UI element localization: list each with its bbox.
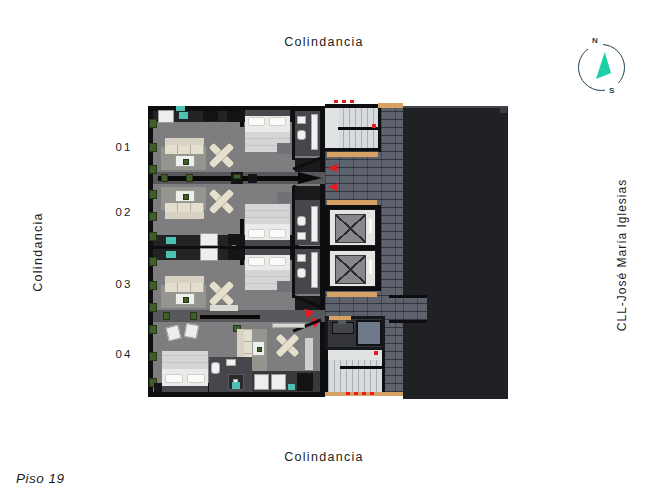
sink — [297, 254, 306, 262]
plant — [149, 119, 157, 128]
mass-corner-detail — [500, 107, 507, 113]
bathtub — [311, 252, 318, 288]
coffee-table — [175, 293, 195, 305]
lounge-chair — [207, 188, 236, 215]
elevator-1 — [329, 209, 376, 246]
sofa-back — [165, 276, 204, 283]
plant — [149, 257, 157, 266]
pillow — [248, 257, 265, 266]
pillow — [248, 117, 265, 126]
dining-table — [274, 332, 301, 359]
coffee-table — [175, 155, 195, 167]
section-mark-top — [334, 100, 358, 103]
bathtub — [311, 206, 318, 242]
plant — [149, 325, 157, 334]
stub-wall-top — [389, 295, 427, 298]
bathroom — [295, 200, 320, 245]
plant — [161, 174, 168, 182]
stair-top-landing — [325, 108, 339, 148]
boundary-label-top: Colindancia — [240, 35, 408, 49]
pillow — [269, 117, 286, 126]
toilet — [297, 130, 306, 140]
corridor-stub — [403, 298, 427, 320]
elevator-cab-icon — [335, 255, 366, 284]
section-mark-bottom — [346, 392, 376, 395]
kitchen-appliance — [158, 110, 174, 123]
stair-top-wall-bottom — [325, 148, 381, 151]
compass: N S — [572, 33, 636, 99]
pillow — [248, 229, 265, 238]
unit-label-02: 02 — [110, 206, 138, 218]
threshold-stair-top — [327, 152, 378, 157]
table-plant — [183, 159, 189, 165]
sofa — [165, 203, 204, 212]
stair-top-red-mark — [372, 124, 376, 128]
coffee-table — [175, 190, 195, 202]
bed — [245, 204, 290, 246]
table-plant — [183, 194, 189, 200]
elevator-door — [369, 260, 372, 274]
shaft-panel — [356, 320, 382, 346]
compass-south-label: S — [609, 86, 614, 95]
toilet — [297, 216, 306, 226]
stair-bottom-stringer — [340, 366, 382, 369]
sink — [297, 232, 306, 240]
partition-wall — [240, 219, 244, 235]
bathtub — [311, 114, 318, 150]
kitchen-appliance — [254, 374, 269, 390]
planter-green — [233, 174, 241, 179]
kitchen-appliance — [200, 248, 218, 261]
kitchen-counter — [153, 249, 232, 260]
stair-bottom-red-mark — [374, 351, 378, 355]
corridor-a-arrowhead — [298, 172, 322, 184]
floorplan-page: Colindancia Colindancia Colindancia CLL-… — [0, 0, 665, 500]
kitchen-counter — [252, 371, 320, 392]
kitchen-sink — [179, 112, 188, 119]
plant — [149, 143, 157, 152]
unit-label-01: 01 — [110, 141, 138, 153]
nightstand — [236, 235, 245, 246]
pillow — [269, 257, 286, 266]
table-plant — [257, 347, 262, 352]
pillow — [187, 374, 205, 383]
entry-arrow-icon — [328, 183, 337, 191]
wall-vent — [176, 106, 185, 111]
headboard — [162, 386, 208, 392]
street-label: CLL-José María Iglesias — [615, 165, 629, 345]
boundary-label-left: Colindancia — [31, 192, 45, 312]
nightstand — [236, 111, 245, 122]
bed — [162, 351, 208, 392]
pillow — [165, 374, 183, 383]
bathroom — [295, 249, 320, 294]
elevator-2 — [329, 250, 376, 287]
kitchen-appliance — [271, 374, 286, 390]
kitchen-counter — [153, 235, 232, 246]
elevator-door — [369, 219, 372, 233]
kitchen-sink — [288, 384, 295, 390]
service-cabinet-tab — [338, 320, 346, 324]
stair-top-wall — [378, 108, 381, 152]
plant — [149, 281, 157, 290]
sink — [297, 116, 306, 124]
sofa — [165, 145, 204, 154]
elevator-cab-icon — [335, 214, 366, 243]
threshold-top — [378, 103, 403, 108]
sofa — [165, 283, 204, 292]
lounge-chair — [207, 280, 236, 307]
lounge-chair — [207, 142, 236, 169]
kitchen-appliance — [200, 233, 218, 246]
planter-box — [248, 174, 257, 183]
console-shelf — [272, 323, 305, 328]
plant — [190, 312, 197, 320]
floor-title: Piso 19 — [16, 471, 65, 486]
plant — [163, 312, 170, 320]
unit-label-03: 03 — [110, 278, 138, 290]
table-plant — [183, 297, 189, 303]
sofa-back — [165, 212, 204, 219]
stair-bottom-wall-right — [382, 350, 385, 392]
corridor-bench — [210, 305, 238, 311]
entry-arrow-icon — [328, 164, 337, 172]
bathroom — [209, 357, 252, 392]
threshold-elevator-bottom — [327, 292, 377, 297]
armchair — [184, 323, 199, 339]
plant — [149, 352, 157, 361]
corridor-b-axis — [200, 315, 260, 319]
entry-nook — [295, 186, 320, 200]
coffee-table — [252, 341, 265, 356]
kitchen-sink — [166, 251, 176, 258]
plant — [149, 303, 157, 312]
adjacent-building-mass — [403, 106, 508, 399]
headboard — [245, 249, 290, 255]
unit-label-04: 04 — [110, 348, 138, 360]
bathroom — [295, 111, 320, 156]
compass-north-label: N — [592, 36, 598, 45]
closet — [297, 373, 313, 391]
blanket — [162, 351, 208, 369]
toilet — [211, 362, 220, 374]
sink — [226, 359, 236, 366]
kitchen-sink — [166, 237, 176, 244]
toilet — [297, 268, 306, 278]
boundary-label-bottom: Colindancia — [240, 450, 408, 464]
blanket — [245, 204, 290, 224]
plant — [149, 190, 157, 199]
nightstand — [236, 249, 245, 260]
pillow — [269, 229, 286, 238]
plant — [186, 174, 193, 182]
side-shelf — [305, 338, 313, 370]
nightstand — [154, 383, 162, 392]
plant — [149, 232, 157, 241]
kitchen-stove — [203, 111, 218, 121]
corridor-a-axis — [158, 176, 298, 181]
plant — [149, 212, 157, 221]
laundry-unit — [232, 382, 240, 389]
stub-wall-bottom — [389, 320, 427, 323]
headboard — [245, 240, 290, 246]
sofa-back — [165, 138, 204, 145]
headboard — [245, 110, 290, 116]
plant — [149, 165, 157, 174]
